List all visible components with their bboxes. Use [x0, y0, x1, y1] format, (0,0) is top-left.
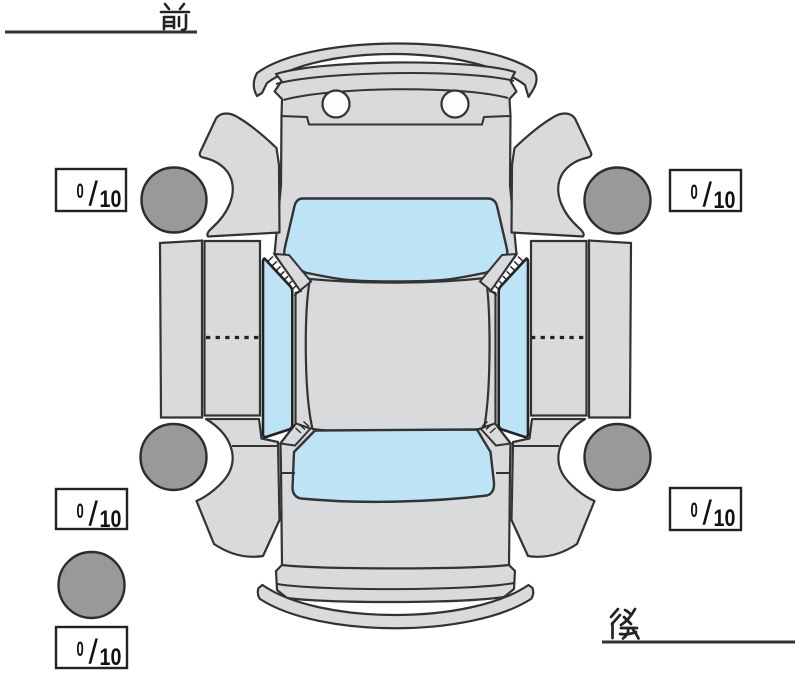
svg-text:/: /	[89, 634, 99, 672]
svg-text:10: 10	[714, 504, 736, 531]
svg-text:/: /	[89, 496, 99, 534]
svg-text:0: 0	[77, 499, 84, 523]
svg-text:0: 0	[691, 498, 698, 522]
svg-text:/: /	[703, 495, 713, 533]
svg-text:/: /	[703, 177, 713, 215]
svg-text:10: 10	[100, 505, 122, 532]
svg-text:/: /	[89, 176, 99, 214]
svg-text:0: 0	[77, 179, 84, 203]
svg-text:0: 0	[77, 637, 84, 661]
svg-text:0: 0	[691, 180, 698, 204]
svg-text:10: 10	[100, 643, 122, 670]
svg-text:10: 10	[100, 185, 122, 212]
svg-text:10: 10	[714, 186, 736, 213]
